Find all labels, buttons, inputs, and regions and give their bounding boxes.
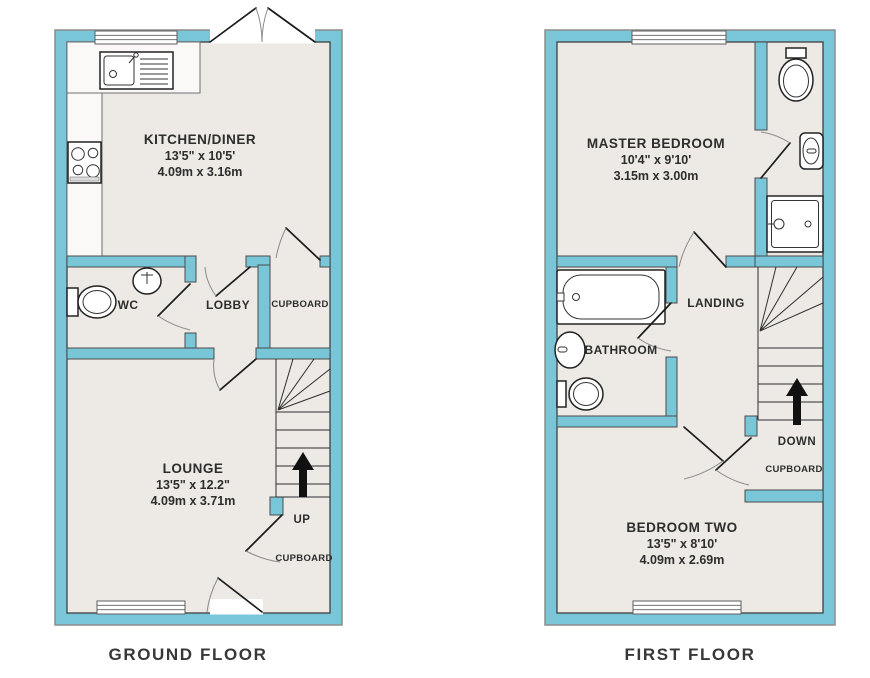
bathroom-label: BATHROOM bbox=[585, 343, 658, 357]
bathroom-toilet-icon bbox=[557, 378, 603, 410]
first-floor-plan: MASTER BEDROOM 10'4" x 9'10' 3.15m x 3.0… bbox=[545, 30, 835, 664]
ground-floor-plan: KITCHEN/DINER 13'5" x 10'5' 4.09m x 3.16… bbox=[55, 8, 342, 664]
bedroom-two-metric: 4.09m x 2.69m bbox=[640, 553, 725, 567]
landing-label: LANDING bbox=[687, 296, 744, 310]
lobby-label: LOBBY bbox=[206, 298, 250, 312]
stairs-cupboard-label: CUPBOARD bbox=[275, 553, 332, 564]
kitchen-metric: 4.09m x 3.16m bbox=[158, 165, 243, 179]
bathroom-basin-icon bbox=[555, 332, 585, 368]
wc-basin-icon bbox=[133, 268, 161, 294]
down-label: DOWN bbox=[778, 436, 816, 448]
master-bedroom-imperial: 10'4" x 9'10' bbox=[621, 153, 691, 167]
floorplan-page: KITCHEN/DINER 13'5" x 10'5' 4.09m x 3.16… bbox=[0, 0, 870, 678]
master-bedroom-metric: 3.15m x 3.00m bbox=[614, 169, 699, 183]
up-label: UP bbox=[294, 514, 311, 526]
bedroom-two-imperial: 13'5" x 8'10' bbox=[647, 537, 717, 551]
bath-icon bbox=[557, 270, 665, 324]
kitchen-imperial: 13'5" x 10'5' bbox=[165, 149, 235, 163]
floorplan-canvas: KITCHEN/DINER 13'5" x 10'5' 4.09m x 3.16… bbox=[0, 0, 870, 678]
lounge-label: LOUNGE bbox=[163, 461, 224, 476]
gf-floor bbox=[67, 42, 330, 613]
master-bedroom-label: MASTER BEDROOM bbox=[587, 136, 725, 151]
kitchen-label: KITCHEN/DINER bbox=[144, 132, 256, 147]
shower-icon bbox=[767, 196, 823, 252]
ensuite-basin-icon bbox=[800, 133, 823, 169]
wc-label: WC bbox=[118, 298, 139, 312]
bedroom-two-label: BEDROOM TWO bbox=[626, 520, 737, 535]
ground-floor-caption: GROUND FLOOR bbox=[109, 645, 268, 664]
cupboard-label: CUPBOARD bbox=[271, 299, 328, 310]
hob-icon bbox=[68, 142, 101, 183]
lounge-imperial: 13'5" x 12.2" bbox=[156, 478, 230, 492]
first-floor-caption: FIRST FLOOR bbox=[625, 645, 756, 664]
kitchen-sink-icon bbox=[100, 52, 173, 89]
ff-cupboard-label: CUPBOARD bbox=[765, 464, 822, 475]
wc-toilet-icon bbox=[67, 286, 116, 318]
lounge-metric: 4.09m x 3.71m bbox=[151, 494, 236, 508]
